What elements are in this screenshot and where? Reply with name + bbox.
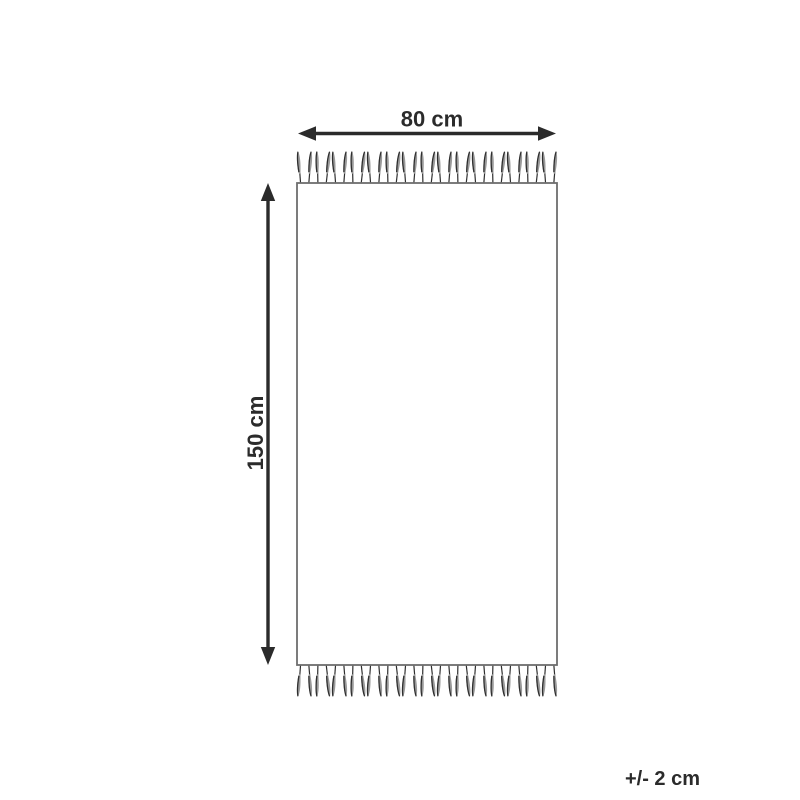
rug-top-fringe: [296, 150, 558, 184]
tolerance-label: +/- 2 cm: [625, 768, 700, 790]
diagram-canvas: 80 cm 150 cm +/- 2 cm: [0, 0, 800, 800]
rug-dimension-diagram: 80 cm 150 cm +/- 2 cm: [0, 0, 800, 800]
height-arrowhead-bottom: [261, 647, 275, 665]
width-arrowhead-right: [538, 126, 556, 140]
height-label: 150 cm: [243, 396, 268, 471]
width-arrowhead-left: [298, 126, 316, 140]
rug-outline: [297, 183, 557, 665]
height-arrowhead-top: [261, 183, 275, 201]
rug-bottom-fringe: [296, 665, 558, 699]
width-label: 80 cm: [401, 107, 463, 132]
